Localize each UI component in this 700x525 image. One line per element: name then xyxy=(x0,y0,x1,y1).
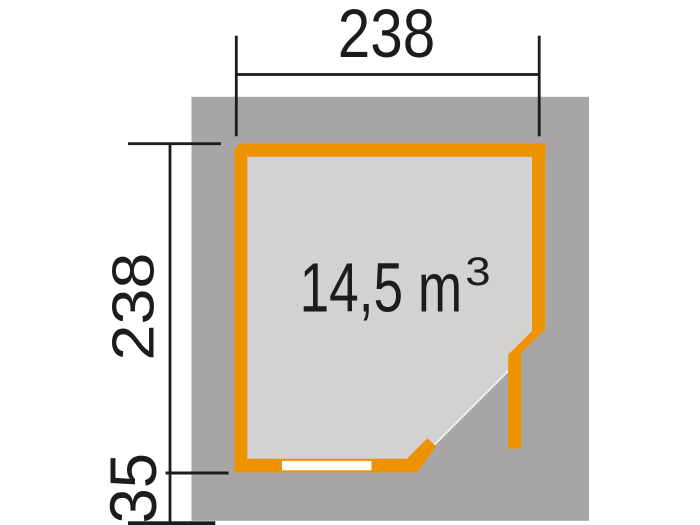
svg-text:238: 238 xyxy=(101,253,167,361)
svg-text:14,5 m: 14,5 m xyxy=(300,249,463,327)
svg-text:35: 35 xyxy=(97,453,170,524)
svg-text:238: 238 xyxy=(338,0,435,72)
svg-text:3: 3 xyxy=(465,250,490,295)
